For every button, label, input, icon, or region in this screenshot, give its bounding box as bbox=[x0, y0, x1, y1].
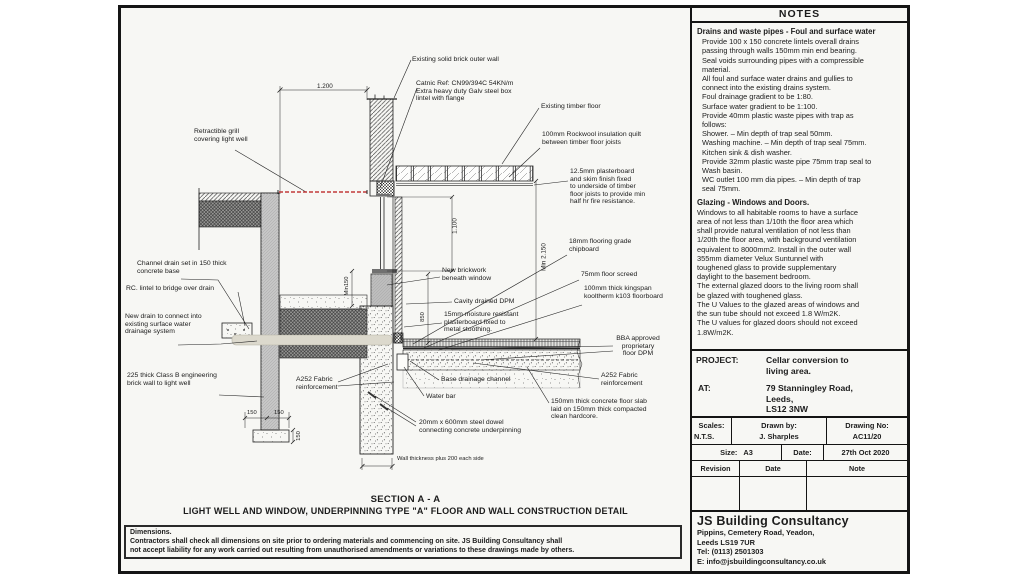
dim-min-2150: Min 2.150 bbox=[541, 243, 548, 271]
date-label-cell: Date: bbox=[781, 445, 823, 460]
size-cell: Size: A3 bbox=[692, 445, 781, 460]
label-a252-right: A252 Fabric reinforcement bbox=[601, 372, 643, 387]
label-rockwool: 100mm Rockwool insulation quilt between … bbox=[542, 131, 641, 146]
notes-line: Provide 40mm plastic waste pipes with tr… bbox=[702, 111, 903, 120]
titleblock-row1: Scales: N.T.S. Drawn by: J. Sharples Dra… bbox=[692, 416, 907, 444]
notes-line: the sun tube should not exceed 1.8 W/m2K… bbox=[697, 309, 903, 318]
title-block-panel: NOTES Drains and waste pipes - Foul and … bbox=[690, 8, 907, 571]
revision-header: Revision bbox=[692, 461, 739, 476]
label-bba-dpm: BBA approved proprietary floor DPM bbox=[607, 335, 669, 358]
titleblock-row2: Size: A3 Date: 27th Oct 2020 bbox=[692, 444, 907, 460]
revision-date-text: Date bbox=[765, 464, 781, 473]
scales-label: Scales: bbox=[692, 421, 731, 430]
notes-heading-glazing: Glazing - Windows and Doors. bbox=[697, 198, 903, 207]
date-label: Date: bbox=[793, 448, 811, 457]
notes-line: Provide 32mm plastic waste pipe 75mm tra… bbox=[702, 157, 903, 166]
drawing-sheet: Existing solid brick outer wall Catnic R… bbox=[118, 5, 910, 574]
notes-line: Wash basin. bbox=[702, 166, 903, 175]
notes-line: equivalent to 8000mm2. Install in the ou… bbox=[697, 245, 903, 254]
notes-body: Drains and waste pipes - Foul and surfac… bbox=[692, 21, 907, 349]
notes-line: connect into the existing drains system. bbox=[702, 83, 903, 92]
revision-empty-cell2 bbox=[739, 477, 806, 510]
label-channel-drain: Channel drain set in 150 thick concrete … bbox=[137, 260, 227, 275]
notes-line: passing through walls 150mm min end bear… bbox=[702, 46, 903, 55]
disclaimer-line1: Contractors shall check all dimensions o… bbox=[130, 537, 676, 546]
drawing-no-cell: Drawing No: AC11/20 bbox=[826, 418, 907, 444]
disclaimer-line2: not accept liability for any work carrie… bbox=[130, 546, 676, 555]
project-block: PROJECT: Cellar conversion to living are… bbox=[692, 349, 907, 416]
drawn-by-label: Drawn by: bbox=[732, 421, 826, 430]
drawing-no-value: AC11/20 bbox=[827, 432, 907, 441]
label-new-drain: New drain to connect into existing surfa… bbox=[125, 313, 202, 336]
revision-header-text: Revision bbox=[701, 464, 731, 473]
label-existing-wall: Existing solid brick outer wall bbox=[412, 56, 499, 64]
notes-line: Provide 100 x 150 concrete lintels overa… bbox=[702, 37, 903, 46]
revision-empty-cell3 bbox=[806, 477, 907, 510]
dim-foot-right: 150 bbox=[274, 410, 284, 416]
dim-foot-depth: 150 bbox=[296, 431, 302, 441]
firm-address2: Leeds LS19 7UR bbox=[697, 538, 907, 548]
label-catnic-lintel: Catnic Ref: CN99/394C 54KN/m Extra heavy… bbox=[416, 80, 513, 103]
notes-line: The external glazed doors to the living … bbox=[697, 281, 903, 290]
label-rc-lintel: RC. lintel to bridge over drain bbox=[126, 285, 214, 293]
section-subtitle: LIGHT WELL AND WINDOW, UNDERPINNING TYPE… bbox=[121, 506, 690, 516]
size-label: Size: bbox=[720, 448, 737, 457]
revision-empty-row bbox=[692, 476, 907, 510]
revision-header-row: Revision Date Note bbox=[692, 460, 907, 476]
label-timber-floor: Existing timber floor bbox=[541, 103, 601, 111]
date-value: 27th Oct 2020 bbox=[841, 448, 889, 457]
notes-line: The U Values to the glazed areas of wind… bbox=[697, 300, 903, 309]
geometry-lines bbox=[178, 60, 613, 470]
revision-note-header: Note bbox=[806, 461, 907, 476]
revision-note-text: Note bbox=[849, 464, 865, 473]
notes-drains-lines: Provide 100 x 150 concrete lintels overa… bbox=[697, 37, 903, 193]
label-a252-left: A252 Fabric reinforcement bbox=[296, 376, 338, 391]
notes-line: WC outlet 100 mm dia pipes. – Min depth … bbox=[702, 175, 903, 184]
label-grill: Retractible grill covering light well bbox=[194, 128, 248, 143]
label-brick-225: 225 thick Class B engineering brick wall… bbox=[127, 372, 217, 387]
notes-line: 355mm diameter Velux Suntunnel with bbox=[697, 254, 903, 263]
label-moisture-pb: 15mm moisture resistant plasterboard fix… bbox=[444, 311, 518, 334]
notes-line: Windows to all habitable rooms to have a… bbox=[697, 208, 903, 217]
firm-block: JS Building Consultancy Pippins, Cemeter… bbox=[692, 510, 907, 571]
size-value: A3 bbox=[743, 448, 752, 457]
section-drawing: Existing solid brick outer wall Catnic R… bbox=[121, 8, 690, 565]
notes-line: daylight to the basement bedroom. bbox=[697, 272, 903, 281]
dim-foot-left: 150 bbox=[247, 410, 257, 416]
date-value-cell: 27th Oct 2020 bbox=[823, 445, 907, 460]
label-plasterboard: 12.5mm plasterboard and skim finish fixe… bbox=[570, 168, 645, 206]
drawn-by-value: J. Sharples bbox=[732, 432, 826, 441]
revision-date-header: Date bbox=[739, 461, 806, 476]
revision-empty-cell1 bbox=[692, 477, 739, 510]
drawn-by-cell: Drawn by: J. Sharples bbox=[731, 418, 826, 444]
notes-line: Seal voids surrounding pipes with a comp… bbox=[702, 56, 903, 65]
label-floor-slab: 150mm thick concrete floor slab laid on … bbox=[551, 398, 647, 421]
notes-line: shall provide natural ventilation of not… bbox=[697, 226, 903, 235]
section-title: SECTION A - A bbox=[121, 494, 690, 505]
dimensions-disclaimer: Dimensions. Contractors shall check all … bbox=[124, 525, 682, 559]
notes-line: Washing machine. – Min depth of trap sea… bbox=[702, 138, 903, 147]
disclaimer-heading: Dimensions. bbox=[130, 528, 676, 537]
firm-address1: Pippins, Cemetery Road, Yeadon, bbox=[697, 528, 907, 538]
notes-heading-drains: Drains and waste pipes - Foul and surfac… bbox=[697, 27, 903, 36]
notes-line: Foul drainage gradient to be 1:80. bbox=[702, 92, 903, 101]
label-base-channel: Base drainage channel bbox=[441, 376, 511, 384]
firm-email: E: info@jsbuildingconsultancy.co.uk bbox=[697, 557, 907, 567]
firm-tel: Tel: (0113) 2501303 bbox=[697, 547, 907, 557]
screenshot-canvas: Existing solid brick outer wall Catnic R… bbox=[0, 0, 1024, 576]
scales-cell: Scales: N.T.S. bbox=[692, 418, 731, 444]
notes-line: 1.8W/m2K. bbox=[697, 328, 903, 337]
firm-name: JS Building Consultancy bbox=[697, 514, 907, 528]
notes-line: Surface water gradient to be 1:100. bbox=[702, 102, 903, 111]
at-value: 79 Stanningley Road, Leeds, LS12 3NW bbox=[766, 383, 853, 415]
at-label: AT: bbox=[698, 383, 711, 393]
notes-line: seal 75mm. bbox=[702, 184, 903, 193]
drawing-no-label: Drawing No: bbox=[827, 421, 907, 430]
notes-line: area of not less than 1/10th the floor a… bbox=[697, 217, 903, 226]
label-chipboard: 18mm flooring grade chipboard bbox=[569, 238, 631, 253]
dim-1100: 1.100 bbox=[452, 218, 459, 234]
scales-value: N.T.S. bbox=[692, 432, 731, 441]
dim-min150: Min150 bbox=[344, 276, 350, 295]
label-kingspan: 100mm thick kingspan kooltherm k103 floo… bbox=[584, 285, 663, 300]
label-screed: 75mm floor screed bbox=[581, 271, 637, 279]
label-new-brickwork: New brickwork beneath window bbox=[442, 267, 491, 282]
notes-glazing-lines: Windows to all habitable rooms to have a… bbox=[697, 208, 903, 337]
notes-line: be glazed with toughened glass. bbox=[697, 291, 903, 300]
label-water-bar: Water bar bbox=[426, 393, 456, 401]
dim-850: 850 bbox=[420, 312, 426, 322]
notes-line: toughened glass to provide supplementary bbox=[697, 263, 903, 272]
notes-line: The U values for glazed doors should not… bbox=[697, 318, 903, 327]
notes-line: Shower. – Min depth of trap seal 50mm. bbox=[702, 129, 903, 138]
notes-line: material. bbox=[702, 65, 903, 74]
label-steel-dowel: 20mm x 600mm steel dowel connecting conc… bbox=[419, 419, 521, 434]
notes-line: All foul and surface water drains and gu… bbox=[702, 74, 903, 83]
label-cavity-dpm: Cavity drained DPM bbox=[454, 298, 514, 306]
notes-title: NOTES bbox=[692, 8, 907, 21]
notes-line: follows: bbox=[702, 120, 903, 129]
notes-line: 1/20th the floor area, with background v… bbox=[697, 235, 903, 244]
label-wall-thickness: Wall thickness plus 200 each side bbox=[397, 456, 484, 462]
dim-1200: 1.200 bbox=[317, 83, 333, 90]
project-label: PROJECT: bbox=[696, 355, 739, 365]
notes-line: Kitchen sink & dish washer. bbox=[702, 148, 903, 157]
project-value: Cellar conversion to living area. bbox=[766, 355, 849, 377]
